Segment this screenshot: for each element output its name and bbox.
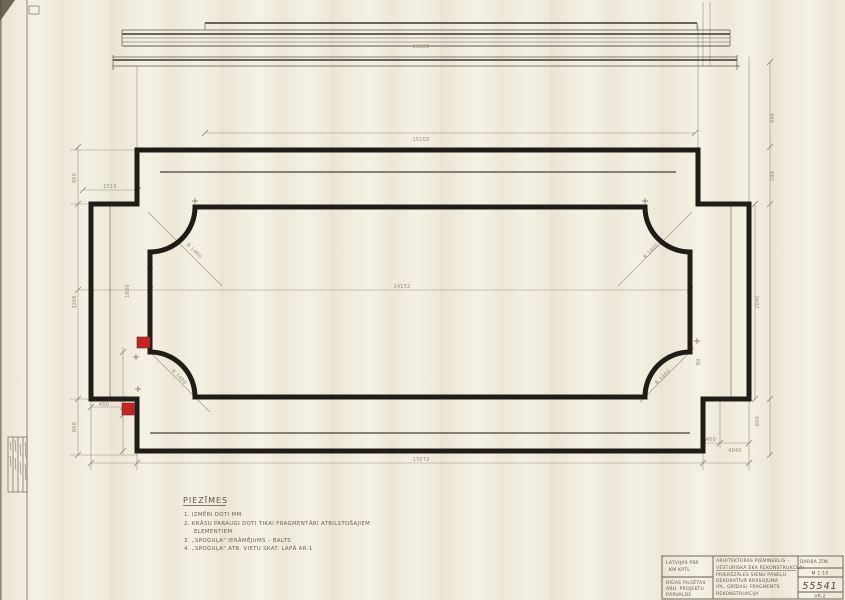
dim-label: 2040 <box>755 295 761 309</box>
scan-corner-blob <box>0 0 15 21</box>
scale-value: M 1:10 <box>812 571 829 577</box>
dim-label: 448 <box>770 113 776 123</box>
notes-block: PIEZĪMES 1. IZMĒRI DOTI MM 2. KRĀSU PARA… <box>183 495 370 552</box>
dim-label: 860 <box>72 422 78 432</box>
dimension-labels: 16320 15102 1515 14152 17072 950 3265 86… <box>72 44 776 463</box>
note-line: 2. KRĀSU PARAUGI DOTI TIKAI FRAGMENTĀRI … <box>184 520 370 527</box>
drawing-sheet: 16320 15102 1515 14152 17072 950 3265 86… <box>0 0 845 600</box>
project-line: (PL. GRĪDAS) FRAGMENTS <box>716 583 780 590</box>
dim-label: 600 <box>755 416 761 426</box>
dim-label: 1800 <box>125 284 131 298</box>
dim-label: 14152 <box>394 284 411 290</box>
dim-label: 17072 <box>413 457 430 463</box>
dim-label: 298 <box>770 171 776 181</box>
dim-label: 450 <box>99 402 109 408</box>
org-line: KM KPTL <box>669 567 690 573</box>
note-line: ELEMENTIEM <box>194 529 232 535</box>
org-line: LATVIJAS PSR <box>666 560 699 566</box>
project-line: DEKORATĪVĀ KRĀSOJUMA <box>716 577 779 584</box>
side-stamp <box>8 437 27 492</box>
notes-title: PIEZĪMES <box>183 495 228 505</box>
dim-label: 3265 <box>72 295 78 309</box>
radius-label: R 1400 <box>654 368 672 386</box>
radius-label: R 1400 <box>642 242 660 260</box>
title-block: LATVIJAS PSR KM KPTL RĪGAS PILSĒTAS ARH.… <box>662 556 843 600</box>
dim-label: 950 <box>72 173 78 183</box>
dim-label: 450 <box>706 437 716 443</box>
architectural-plan-svg: 16320 15102 1515 14152 17072 950 3265 86… <box>0 0 845 600</box>
note-line: 4. „SPOGUĻA" ATR. VIETU SKAT. LAPĀ AR-1 <box>184 545 313 552</box>
org-line: ARH. PROJEKTU <box>666 586 704 592</box>
red-sample-2 <box>122 403 134 415</box>
sheet-code: AR-2 <box>814 594 826 600</box>
org-line: PĀRVALDE <box>666 591 691 598</box>
dim-label: 90 <box>696 359 702 366</box>
dim-label: 15102 <box>413 137 430 143</box>
project-line: ARHITEKTŪRAS PIEMINEKLIS – <box>716 557 790 564</box>
dimension-lines <box>70 2 770 470</box>
drawing-number: 55541 <box>802 581 837 592</box>
corner-mark <box>29 6 39 14</box>
note-line: 3. „SPOGUĻA" IERĀMĒJUMS – BALTS <box>184 537 291 544</box>
dim-label: 4040 <box>728 448 742 454</box>
project-line: REKONSTRUKCIJA <box>716 591 759 597</box>
cross-markers <box>133 198 700 392</box>
project-line: VĒSTURISKĀ ĒKA REKONSTRUKCIJAI <box>716 564 804 571</box>
outer-wall-path <box>91 150 749 451</box>
doc-label: DARBA ZĪM. <box>800 558 829 565</box>
dimension-ticks <box>75 59 773 466</box>
red-sample-1 <box>137 337 150 348</box>
hall-wall-path <box>150 207 690 397</box>
note-line: 1. IZMĒRI DOTI MM <box>184 511 242 518</box>
plan-inner-lines <box>110 172 731 433</box>
project-line: PRIEKŠZĀLES SIENU PANEĻU <box>716 571 786 578</box>
dim-label: 16320 <box>413 44 430 50</box>
dim-label: 1515 <box>103 184 117 190</box>
scan-edge <box>0 0 2 600</box>
org-line: RĪGAS PILSĒTAS <box>666 579 705 586</box>
